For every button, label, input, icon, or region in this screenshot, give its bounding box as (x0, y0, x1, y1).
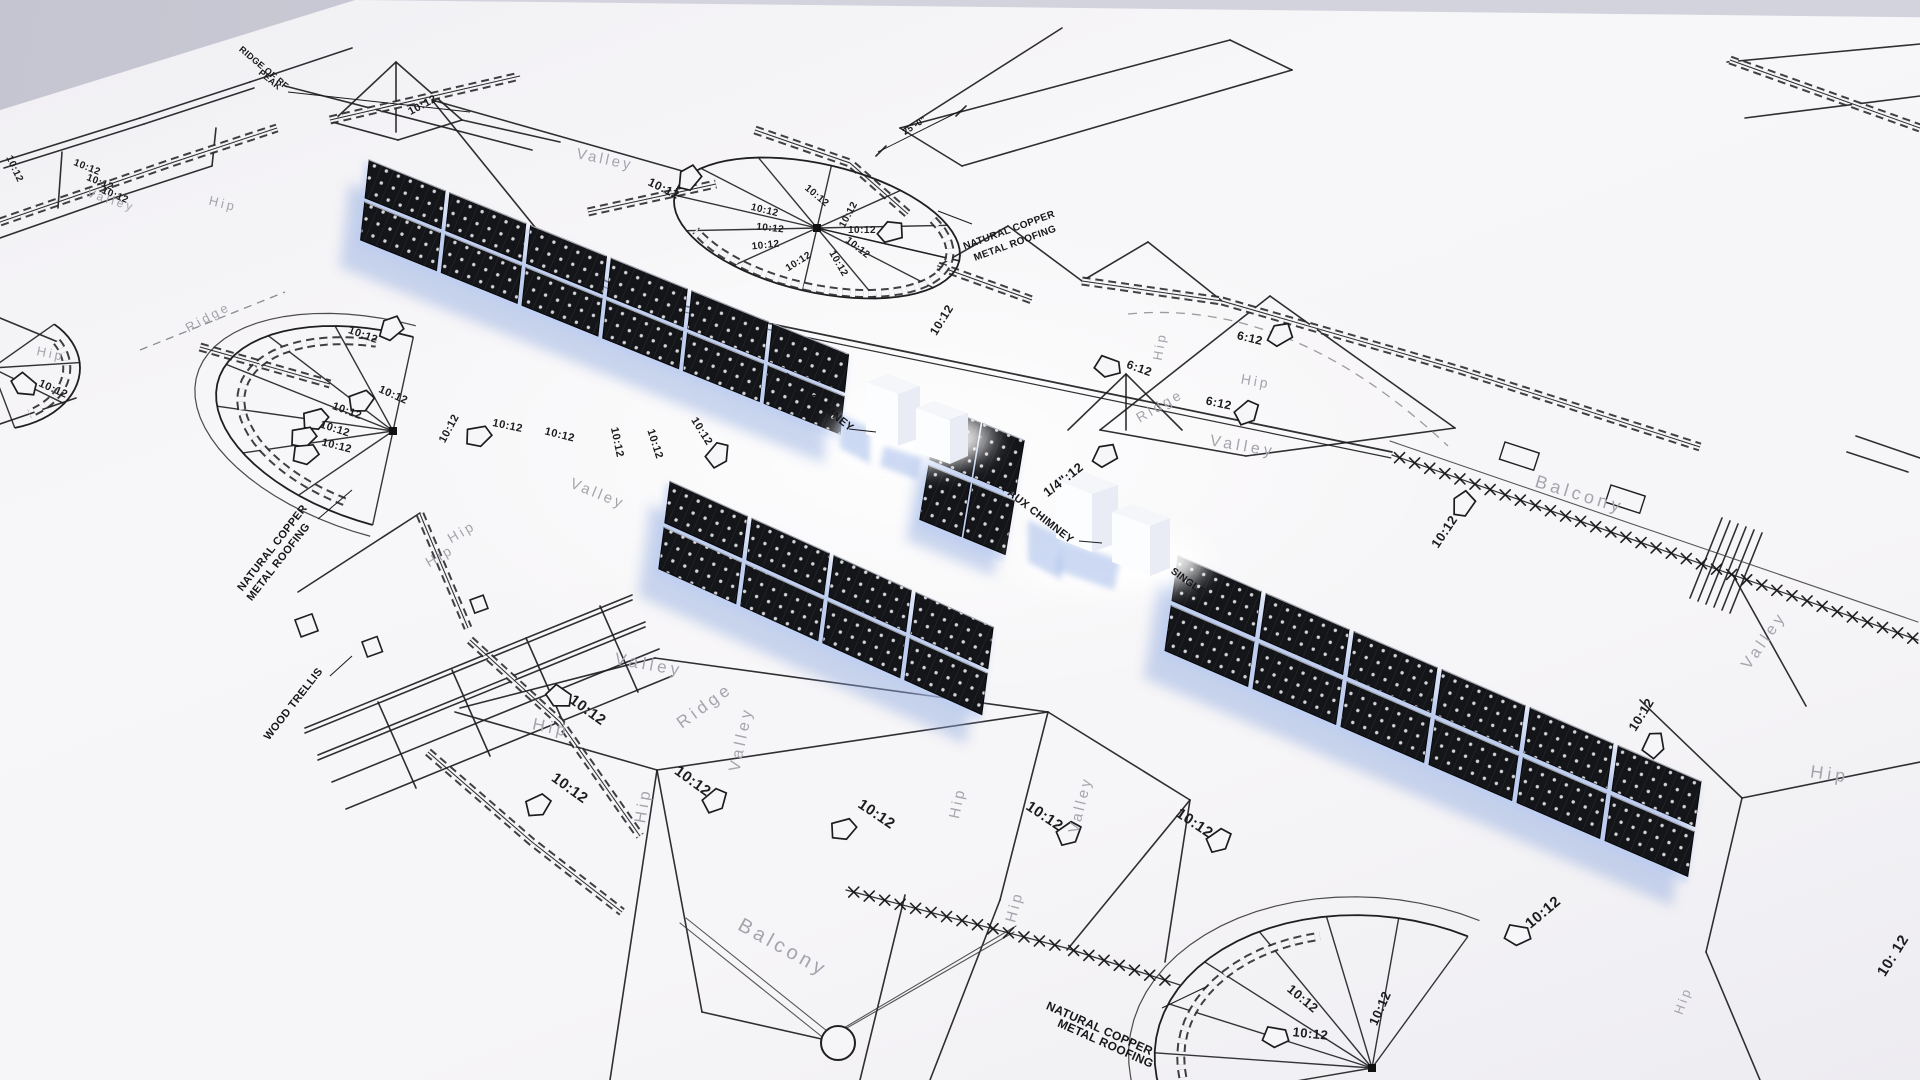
slope-label: 10:12 (688, 415, 714, 447)
shingle-chain-line (1730, 60, 1920, 128)
slope-label: 10:12 (1428, 512, 1460, 550)
roof-edge (298, 513, 420, 592)
face-label: Valley (726, 705, 756, 773)
annotation-text: NATURAL COPPER (235, 503, 310, 594)
trellis-post (470, 595, 488, 613)
slope-arrow-icon (292, 444, 320, 465)
turret-rib (373, 431, 393, 525)
slope-label: 10:12 (377, 384, 410, 407)
slope-label: 10:12 (543, 426, 576, 445)
roof-edge (905, 28, 1062, 128)
roof-edge (962, 70, 1292, 166)
shingle-chain-line (755, 130, 908, 214)
slope-label: 10:12 (1366, 989, 1394, 1028)
roof-edge (1847, 452, 1908, 472)
slope-label: 10: 12 (1874, 932, 1913, 980)
roof-edge (860, 895, 905, 1080)
slope-label: 10:12 (1284, 981, 1321, 1015)
trellis-post (362, 637, 383, 658)
slope-label: 10:12 (848, 225, 876, 236)
turret-fan (0, 324, 80, 428)
face-label: Valley (568, 475, 628, 512)
face-label: Hip (632, 786, 655, 824)
roof-edge (1246, 428, 1455, 456)
slope-label: 10:12 (784, 250, 814, 274)
slope-arrow-icon (1262, 1026, 1291, 1049)
roof-edge (1066, 948, 1180, 985)
trellis-post (295, 614, 318, 637)
roof-edge (332, 649, 659, 782)
turret-rib (675, 195, 817, 228)
slope-label: 10:12 (1292, 1024, 1329, 1043)
roof-edge (1706, 952, 1760, 1080)
face-label: Hip (1240, 371, 1272, 392)
roof-plan-drawing: 10:1210:1210:1210:1210:1210:1210:1210:12… (0, 0, 1920, 1080)
roof-edge (462, 120, 560, 142)
turret-rib (701, 168, 817, 228)
turret-rib (687, 228, 817, 231)
scene: 10:1210:1210:1210:1210:1210:1210:1210:12… (0, 0, 1920, 1080)
slope-label: 6:12 (1205, 394, 1233, 413)
annotation-leader (318, 490, 352, 519)
face-label: Ridge (673, 679, 736, 732)
roof-edge (846, 890, 1066, 948)
slope-arrow-icon (465, 425, 494, 448)
slope-arrow-icon (374, 312, 406, 343)
turret-hub (389, 427, 397, 435)
roof-edge (0, 318, 58, 342)
slope-label: 10:12 (756, 222, 785, 236)
roof-edge (930, 900, 1000, 1080)
face-label: Hip (1002, 889, 1027, 924)
roof-edge (1730, 533, 1762, 613)
face-label: Ridge (1133, 386, 1186, 426)
roof-edge (526, 638, 564, 724)
roof-edge (120, 166, 212, 196)
slope-label: 10:12 (491, 417, 523, 435)
slope-label: 10:12 (843, 235, 872, 261)
slope-label: 10:12 (750, 202, 780, 219)
roof-edge (1690, 518, 1722, 598)
turret-rib (1205, 962, 1372, 1068)
turret-fan (674, 158, 960, 299)
roof-edge (1067, 800, 1190, 950)
balcony-column (821, 1026, 855, 1060)
face-label: Hip (207, 193, 238, 214)
roof-edge (144, 88, 254, 124)
face-label: Balcony (1533, 471, 1627, 517)
roof-edge (396, 62, 462, 120)
slope-arrow-icon (1093, 355, 1124, 382)
face-label: Valley (1065, 775, 1095, 835)
slope-arrow-icon (523, 792, 555, 820)
roof-edge (0, 118, 140, 162)
slope-arrow-icon (1088, 440, 1120, 469)
turret-shingle-core (1181, 936, 1320, 1080)
shingle-chain-core (755, 130, 908, 214)
slope-arrow-icon (875, 218, 905, 243)
shingle-chain-line (938, 266, 1032, 300)
face-label: Hip (531, 714, 572, 740)
face-label: Valley (1209, 432, 1277, 460)
roof-edge (657, 770, 702, 1012)
annotation-text: WOOD TRELLIS (262, 666, 326, 743)
turret-rib (1155, 1053, 1372, 1068)
roof-edge (1706, 798, 1742, 952)
face-label: Hip (1671, 984, 1695, 1016)
annotation-leader (330, 656, 352, 676)
turret-rib (1326, 917, 1372, 1068)
slope-label: 10:12 (3, 154, 25, 184)
roof-edge (702, 1012, 826, 1040)
shingle-chain (1222, 301, 1700, 447)
solar-array (1144, 556, 1701, 906)
slope-arrow-icon (829, 817, 859, 842)
slope-label: 10:12 (608, 426, 626, 458)
roof-edge (1082, 242, 1148, 281)
chimney-side-face (1150, 518, 1170, 576)
slope-label: 10:12 (566, 691, 609, 729)
face-label: Ridge (183, 299, 233, 335)
shingle-chain (755, 130, 908, 214)
slope-label: 10:12 (548, 769, 591, 807)
slope-arrow-icon (8, 370, 40, 401)
slope-arrow-icon (1641, 729, 1669, 761)
turret-hub (813, 224, 821, 232)
slope-label: 10:12 (320, 437, 353, 456)
slope-label: 10:12 (1522, 893, 1564, 932)
roof-edge (140, 82, 250, 118)
turret-rib (393, 337, 413, 431)
roof-edge (1390, 441, 1918, 622)
annotation-leader (938, 211, 972, 224)
roof-edge (657, 712, 1048, 770)
roof-edge (1048, 712, 1190, 800)
roof-edge (826, 932, 1014, 1040)
roof-edge (1698, 521, 1730, 601)
roof-edge (832, 926, 1016, 1035)
roof-edge (332, 122, 398, 140)
chimney-side-face (950, 413, 968, 464)
roof-edge (1856, 436, 1920, 458)
roof-edge (432, 100, 700, 176)
roof-edge (900, 40, 1230, 128)
face-label: Hip (445, 517, 479, 546)
balcony-tab (1499, 442, 1539, 470)
roof-edge (378, 702, 416, 788)
slope-label: 10:12 (1625, 695, 1657, 733)
turret-fan (1129, 897, 1480, 1080)
slope-label: 10:12 (437, 412, 462, 445)
turret-hub (1368, 1064, 1376, 1072)
slope-label: 6:12 (1125, 357, 1154, 379)
slope-label: 10:12 (644, 428, 665, 461)
face-label: Balcony (734, 914, 831, 981)
roof-edge (1230, 40, 1292, 70)
slope-label: 6:12 (1236, 328, 1265, 348)
slope-label: 10:12 (751, 239, 780, 253)
face-label: Hip (946, 786, 969, 820)
slope-label: 10:12 (927, 302, 956, 338)
turret-rib (1165, 1068, 1372, 1080)
slope-arrow-icon (1504, 924, 1533, 947)
slope-label: 10:12 (855, 796, 898, 833)
face-label: Hip (1150, 331, 1170, 362)
roof-edge (1727, 44, 1920, 62)
